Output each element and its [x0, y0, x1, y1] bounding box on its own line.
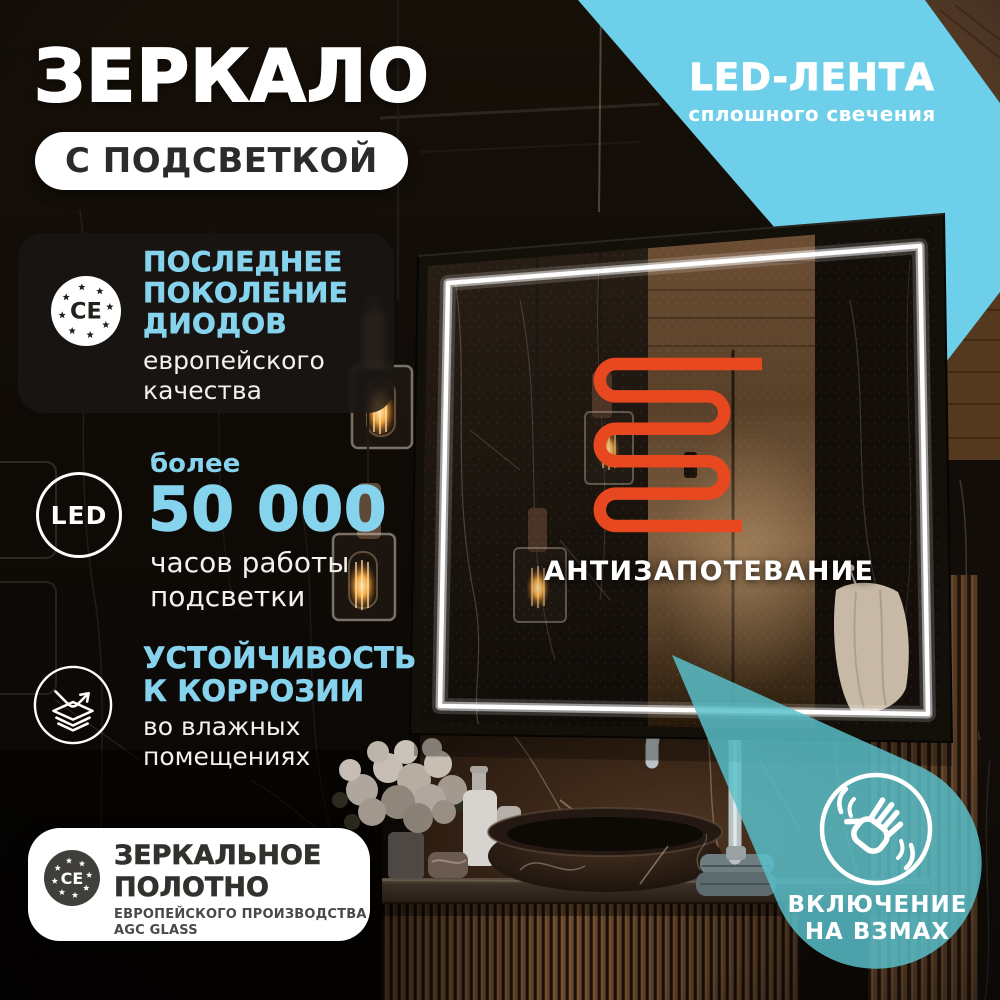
glass-badge-subtitle: ЕВРОПЕЙСКОГО ПРОИЗВОДСТВА AGC GLASS [114, 907, 367, 939]
feature-diodes-body: европейского качества [143, 346, 325, 406]
led-label: LED [51, 501, 108, 530]
wave-badge-label: ВКЛЮЧЕНИЕ НА ВЗМАХ [775, 892, 980, 946]
product-banner: ЗЕРКАЛО С ПОДСВЕТКОЙ LED-ЛЕНТА сплошного… [0, 0, 1000, 1000]
feature-corrosion-body: во влажных помещениях [143, 712, 310, 772]
corrosion-layers-icon [32, 664, 114, 746]
ce-stars-icon: CE [46, 271, 126, 351]
glass-badge-title: ЗЕРКАЛЬНОЕ ПОЛОТНО [114, 840, 321, 904]
ce-stars-icon: CE [43, 849, 101, 907]
glass-badge: CE ЗЕРКАЛЬНОЕ ПОЛОТНО ЕВРОПЕЙСКОГО ПРОИЗ… [28, 828, 370, 941]
title-badge: С ПОДСВЕТКОЙ [35, 132, 408, 190]
ce-mark-label: CE [70, 299, 102, 325]
led-circle-icon: LED [36, 472, 122, 558]
ce-mark-label: CE [61, 869, 84, 888]
feature-diodes-title: ПОСЛЕДНЕЕ ПОКОЛЕНИЕ ДИОДОВ [143, 246, 348, 339]
feature-hours-body: часов работы подсветки [150, 546, 349, 614]
feature-hours-value: 50 000 [148, 474, 387, 545]
feature-corrosion-title: УСТОЙЧИВОСТЬ К КОРРОЗИИ [143, 642, 417, 708]
page-title: ЗЕРКАЛО [34, 34, 430, 118]
ribbon-subtitle: сплошного свечения [652, 102, 972, 126]
ribbon-title: LED-ЛЕНТА [652, 56, 972, 99]
antifog-label: АНТИЗАПОТЕВАНИЕ [544, 556, 820, 587]
ribbon-text: LED-ЛЕНТА сплошного свечения [652, 56, 972, 126]
